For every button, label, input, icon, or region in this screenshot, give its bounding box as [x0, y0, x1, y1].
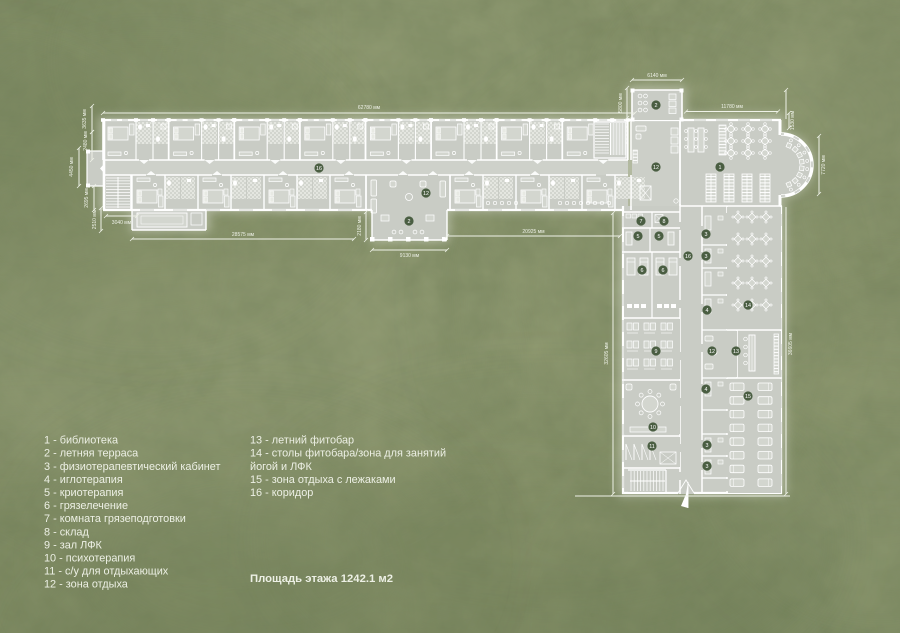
- svg-text:9 - зал ЛФК: 9 - зал ЛФК: [44, 539, 102, 551]
- svg-text:3: 3: [705, 232, 708, 238]
- svg-text:20925 мм: 20925 мм: [522, 229, 545, 235]
- svg-text:3 - физиотерапевтический кабин: 3 - физиотерапевтический кабинет: [44, 461, 221, 473]
- svg-text:9: 9: [655, 349, 658, 355]
- svg-text:1530 мм: 1530 мм: [790, 110, 796, 130]
- svg-text:7720 мм: 7720 мм: [821, 155, 827, 175]
- svg-text:16: 16: [316, 166, 322, 172]
- svg-text:6 - грязелечение: 6 - грязелечение: [44, 500, 128, 512]
- svg-text:4: 4: [706, 308, 709, 314]
- svg-text:5: 5: [637, 234, 640, 240]
- svg-text:2180 мм: 2180 мм: [357, 216, 363, 236]
- svg-text:10: 10: [650, 425, 656, 431]
- svg-text:2480 мм: 2480 мм: [83, 131, 89, 151]
- svg-text:2: 2: [408, 219, 411, 225]
- svg-text:13: 13: [733, 349, 739, 355]
- svg-text:3: 3: [706, 464, 709, 470]
- svg-text:15: 15: [745, 394, 751, 400]
- svg-text:16: 16: [685, 254, 691, 260]
- svg-text:14: 14: [745, 303, 751, 309]
- svg-text:2: 2: [655, 103, 658, 109]
- svg-text:8 - склад: 8 - склад: [44, 526, 89, 538]
- svg-text:6: 6: [641, 268, 644, 274]
- svg-text:5800 мм: 5800 мм: [618, 93, 624, 113]
- svg-text:15 - зона отдыха с лежаками: 15 - зона отдыха с лежаками: [250, 474, 396, 486]
- svg-text:5: 5: [658, 234, 661, 240]
- svg-text:10 - психотерапия: 10 - психотерапия: [44, 553, 135, 565]
- svg-text:2695 мм: 2695 мм: [84, 188, 90, 208]
- svg-text:6140 мм: 6140 мм: [647, 73, 667, 79]
- svg-text:14 - столы фитобара/зона для з: 14 - столы фитобара/зона для занятий: [250, 448, 446, 460]
- svg-text:7: 7: [640, 219, 643, 225]
- svg-text:12 - зона отдыха: 12 - зона отдыха: [44, 579, 129, 591]
- svg-text:3040 мм: 3040 мм: [112, 220, 132, 226]
- svg-text:36605 мм: 36605 мм: [788, 332, 794, 355]
- svg-text:16 - коридор: 16 - коридор: [250, 487, 313, 499]
- svg-text:7 - комната грязеподготовки: 7 - комната грязеподготовки: [44, 513, 186, 525]
- svg-text:4: 4: [705, 387, 708, 393]
- svg-text:1 - библиотека: 1 - библиотека: [44, 435, 119, 447]
- svg-text:11 - с/у для отдыхающих: 11 - с/у для отдыхающих: [44, 566, 169, 578]
- svg-text:62780 мм: 62780 мм: [358, 105, 381, 111]
- svg-text:11: 11: [649, 444, 655, 450]
- svg-text:2510 мм: 2510 мм: [92, 209, 98, 229]
- svg-text:13 - летний фитобар: 13 - летний фитобар: [250, 435, 354, 447]
- svg-text:28575 мм: 28575 мм: [232, 232, 255, 238]
- svg-text:йогой и ЛФК: йогой и ЛФК: [250, 461, 312, 473]
- svg-text:12: 12: [653, 165, 659, 171]
- svg-text:Площадь этажа 1242.1 м2: Площадь этажа 1242.1 м2: [250, 573, 393, 585]
- svg-text:11780 мм: 11780 мм: [721, 104, 743, 110]
- svg-text:9130 мм: 9130 мм: [400, 253, 420, 259]
- svg-text:12: 12: [709, 349, 715, 355]
- svg-text:1: 1: [719, 165, 722, 171]
- svg-text:3: 3: [706, 443, 709, 449]
- svg-text:6: 6: [662, 268, 665, 274]
- svg-text:3: 3: [705, 254, 708, 260]
- svg-text:2 - летняя терраса: 2 - летняя терраса: [44, 448, 139, 460]
- svg-text:4 - иглотерапия: 4 - иглотерапия: [44, 474, 123, 486]
- svg-text:4450 мм: 4450 мм: [69, 157, 75, 177]
- svg-text:32605 мм: 32605 мм: [604, 342, 610, 365]
- svg-text:3635 мм: 3635 мм: [82, 109, 88, 129]
- svg-text:12: 12: [423, 191, 429, 197]
- svg-text:8: 8: [663, 219, 666, 225]
- svg-text:5 - криотерапия: 5 - криотерапия: [44, 487, 123, 499]
